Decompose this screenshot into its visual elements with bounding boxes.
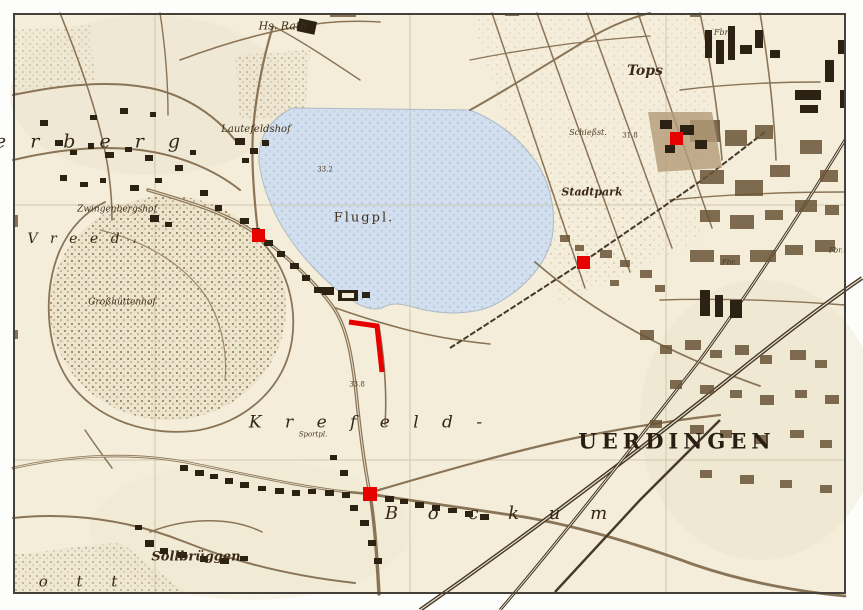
map-label-sollbrueggen: Sollbrüggen	[151, 551, 240, 564]
map-label-height-33-8: 33.8	[349, 382, 365, 389]
map-label-tops: Tops	[627, 64, 663, 78]
map-label-height-33-2: 33.2	[317, 167, 333, 174]
map-label-fabrik-1: Fbr.	[714, 29, 730, 37]
map-label-verberg-letters: e r b e r g	[0, 133, 189, 152]
map-label-ott-letters: o t t	[39, 575, 130, 590]
map-label-sportplatz: Sportpl.	[299, 432, 328, 439]
map-label-uerdingen: UERDINGEN	[578, 431, 775, 452]
map-label-height-31-8: 31.8	[622, 133, 638, 140]
map-label-zwingenbergshof: Zwingenbergshof	[77, 206, 157, 215]
map-label-fabrik-2: Fbr.	[829, 248, 843, 255]
labels-layer: Hs. RathLautefeldshofZwingenbergshofGroß…	[0, 0, 863, 610]
map-canvas: { "map": { "colors": { "paper": "#f3edda…	[0, 0, 863, 610]
map-label-krefeld-letters: K r e f e l d -	[249, 415, 491, 432]
map-label-grosshuettenhof: Großhüttenhof	[88, 299, 155, 308]
map-label-bockum-letters: B o c k u m	[385, 505, 619, 523]
map-label-fabrik-3: Fbr.	[722, 260, 736, 267]
map-label-vreed-letters: V r e e d .	[27, 232, 140, 246]
map-label-stadtpark: Stadtpark	[561, 187, 622, 198]
map-label-hs-rath: Hs. Rath	[259, 21, 308, 32]
map-label-flugplatz: Flugpl.	[334, 212, 394, 225]
map-label-schiessstand: Schießst.	[569, 129, 607, 137]
map-label-lautefeldshof: Lautefeldshof	[221, 125, 291, 135]
